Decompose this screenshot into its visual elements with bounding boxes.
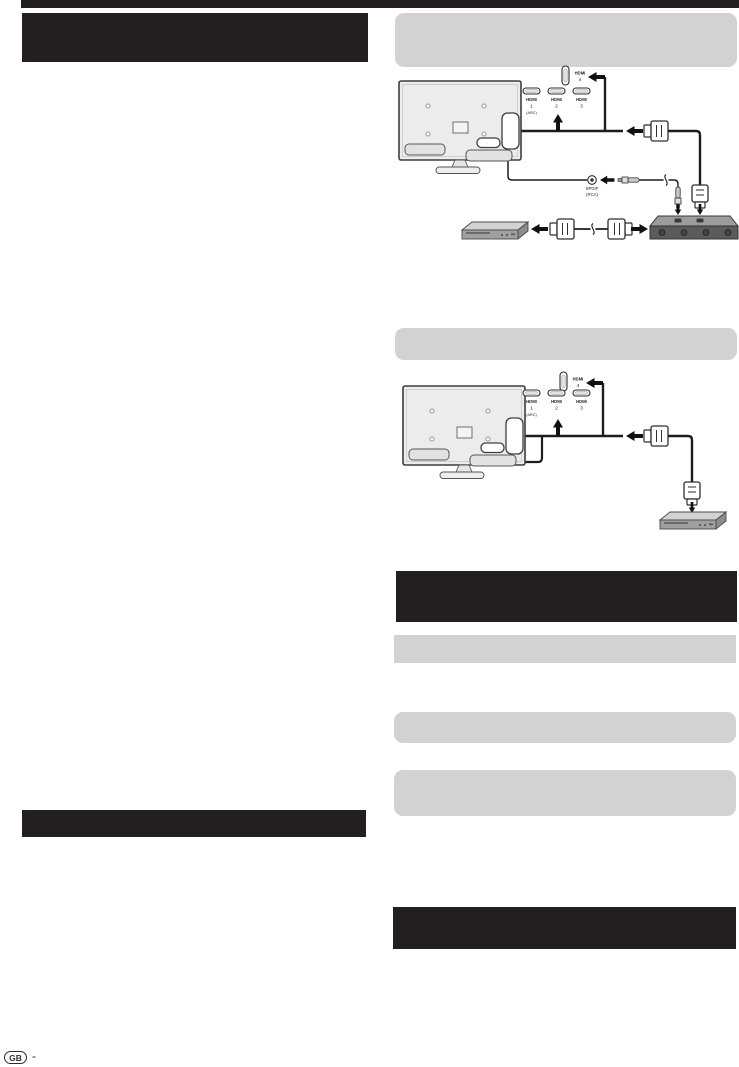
hdmi4-label: HDMI — [573, 377, 584, 382]
tv-back-illustration — [399, 81, 521, 174]
note-box-right-3 — [394, 770, 736, 816]
connection-diagram-hdmi-amplifier: HDMI 4 SPDIF (RCA) — [394, 58, 739, 250]
hdmi-plug-icon — [644, 121, 668, 141]
spdif-jack-pin-icon — [590, 178, 593, 181]
player-device-illustration — [462, 222, 528, 239]
hdmi4-number: 4 — [577, 383, 580, 389]
spdif-label: SPDIF — [586, 186, 599, 191]
tv-back-illustration — [403, 386, 525, 479]
page-number-separator: - — [32, 1049, 36, 1063]
heading-block-bottom-left — [22, 810, 366, 837]
manual-page: HDMI HDMI HDMI 1 2 3 (ARC) — [0, 0, 739, 1067]
arrow-left-icon — [626, 431, 643, 441]
arrow-left-icon — [600, 176, 614, 185]
hdmi-plug-icon — [608, 219, 632, 239]
note-box-mid-right — [395, 328, 737, 360]
hdmi-ports-row — [523, 88, 590, 115]
region-badge: GB — [4, 1051, 27, 1064]
hdmi4-number: 4 — [579, 77, 582, 83]
connection-diagram-hdmi-player: HDMI 4 — [394, 362, 739, 534]
hdmi-plug-vertical-icon — [684, 482, 700, 505]
arrow-left-icon — [531, 224, 548, 234]
note-bar-right — [394, 635, 736, 663]
arrow-left-icon — [586, 378, 603, 388]
hdmi4-label: HDMI — [575, 71, 586, 76]
player-to-amplifier-group — [462, 216, 738, 239]
spdif-output-group: SPDIF (RCA) — [586, 175, 682, 216]
av-amplifier-illustration — [650, 216, 738, 239]
heading-block-top-left — [22, 13, 368, 62]
arrow-up-icon — [553, 419, 563, 436]
cable-break-icon — [664, 175, 669, 186]
arrow-right-icon — [631, 224, 648, 234]
hdmi-cable-to-tv — [626, 121, 708, 215]
spdif-rca-label: (RCA) — [586, 192, 599, 197]
arrow-left-icon — [626, 126, 643, 136]
arrow-down-icon — [675, 204, 682, 215]
cable-break-icon — [591, 224, 596, 235]
region-badge-label: GB — [9, 1053, 22, 1063]
hdmi-ports-row — [523, 390, 590, 417]
arrow-up-icon — [553, 114, 563, 131]
player-device-illustration — [660, 512, 726, 529]
heading-block-right-1 — [396, 571, 737, 622]
hdmi4-port-group: HDMI 4 — [560, 372, 603, 391]
hdmi-plug-icon — [644, 426, 668, 446]
hdmi-cable-to-player — [626, 426, 726, 529]
top-rule — [21, 0, 739, 8]
hdmi4-port-group: HDMI 4 — [562, 66, 605, 85]
heading-block-right-2 — [393, 907, 736, 949]
hdmi-plug-icon — [550, 219, 574, 239]
note-box-right-2 — [394, 712, 736, 743]
arrow-left-icon — [588, 72, 605, 82]
rca-plug-icon — [618, 177, 639, 183]
